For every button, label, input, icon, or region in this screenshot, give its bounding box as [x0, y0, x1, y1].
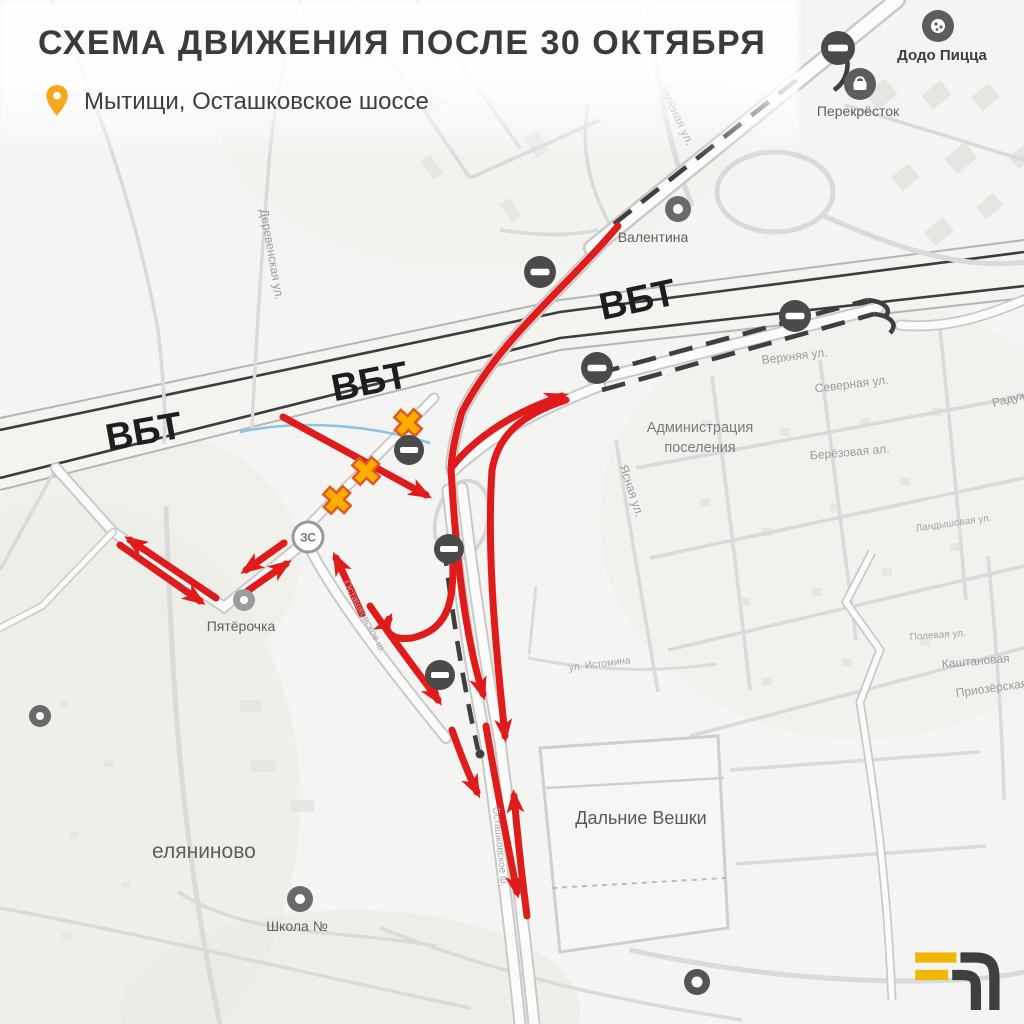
- administration-label-line2: поселения: [664, 440, 735, 456]
- logo-yellow-stripes: [915, 958, 956, 975]
- transit-ring-icon: [684, 969, 710, 995]
- valentina-shop-icon: [665, 196, 691, 222]
- no-entry-sign: [821, 31, 855, 65]
- dodo-pizza-icon: [922, 10, 954, 42]
- no-entry-sign: [434, 534, 464, 564]
- school-label: Школа №: [266, 918, 327, 934]
- no-entry-sign: [425, 660, 455, 690]
- zs-road-badge: ЗС: [293, 522, 323, 552]
- no-entry-sign: [394, 435, 424, 465]
- pyaterochka-icon: [233, 589, 255, 611]
- dalnie-veshki-label: Дальние Вешки: [575, 808, 706, 828]
- no-entry-sign: [581, 352, 613, 384]
- school-icon: [287, 886, 313, 912]
- no-entry-sign: [779, 300, 811, 332]
- perekrestok-icon: [844, 68, 876, 100]
- pyaterochka-label: Пятёрочка: [207, 618, 276, 634]
- valentina-label: Валентина: [618, 229, 689, 245]
- logo-road-curves: [952, 958, 994, 1010]
- no-entry-sign: [524, 256, 556, 288]
- belyaninovo-label: еляниново: [152, 840, 256, 863]
- poi-unlabeled-icon: [29, 705, 51, 727]
- dalnie-veshki-block: [540, 736, 728, 952]
- perekrestok-label: Перекрёсток: [817, 103, 900, 119]
- brand-logo: [912, 938, 1012, 1010]
- administration-label-line1: Администрация: [647, 420, 754, 436]
- map: ЗС ВБТ ВБТ ВБТ Д: [0, 0, 1024, 1024]
- infographic-canvas: ЗС ВБТ ВБТ ВБТ Д: [0, 0, 1024, 1024]
- dodo-pizza-label: Додо Пицца: [897, 47, 987, 64]
- zs-badge-label: ЗС: [300, 531, 316, 545]
